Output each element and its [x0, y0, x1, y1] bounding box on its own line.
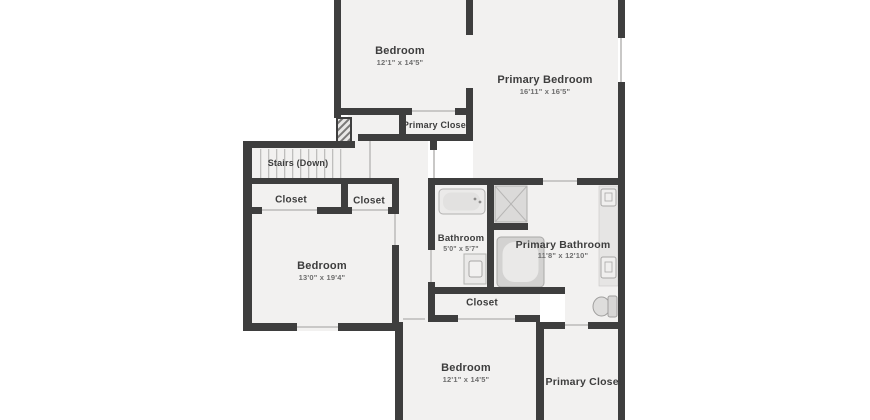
- bathtub-fixture: [439, 189, 485, 214]
- vanity-sink-top-fixture: [601, 189, 616, 206]
- floor-plan: Bedroom 12'1" x 14'5" Primary Bedroom 16…: [0, 0, 870, 420]
- floor-plan-graphics: [0, 0, 870, 420]
- soaking-tub-fixture: [497, 237, 544, 287]
- shower-fixture: [495, 186, 527, 222]
- toilet-fixture: [593, 296, 617, 317]
- vanity-sink-bottom-fixture: [601, 257, 616, 278]
- bathroom-sink-fixture: [464, 254, 486, 284]
- hatched-column: [337, 118, 351, 143]
